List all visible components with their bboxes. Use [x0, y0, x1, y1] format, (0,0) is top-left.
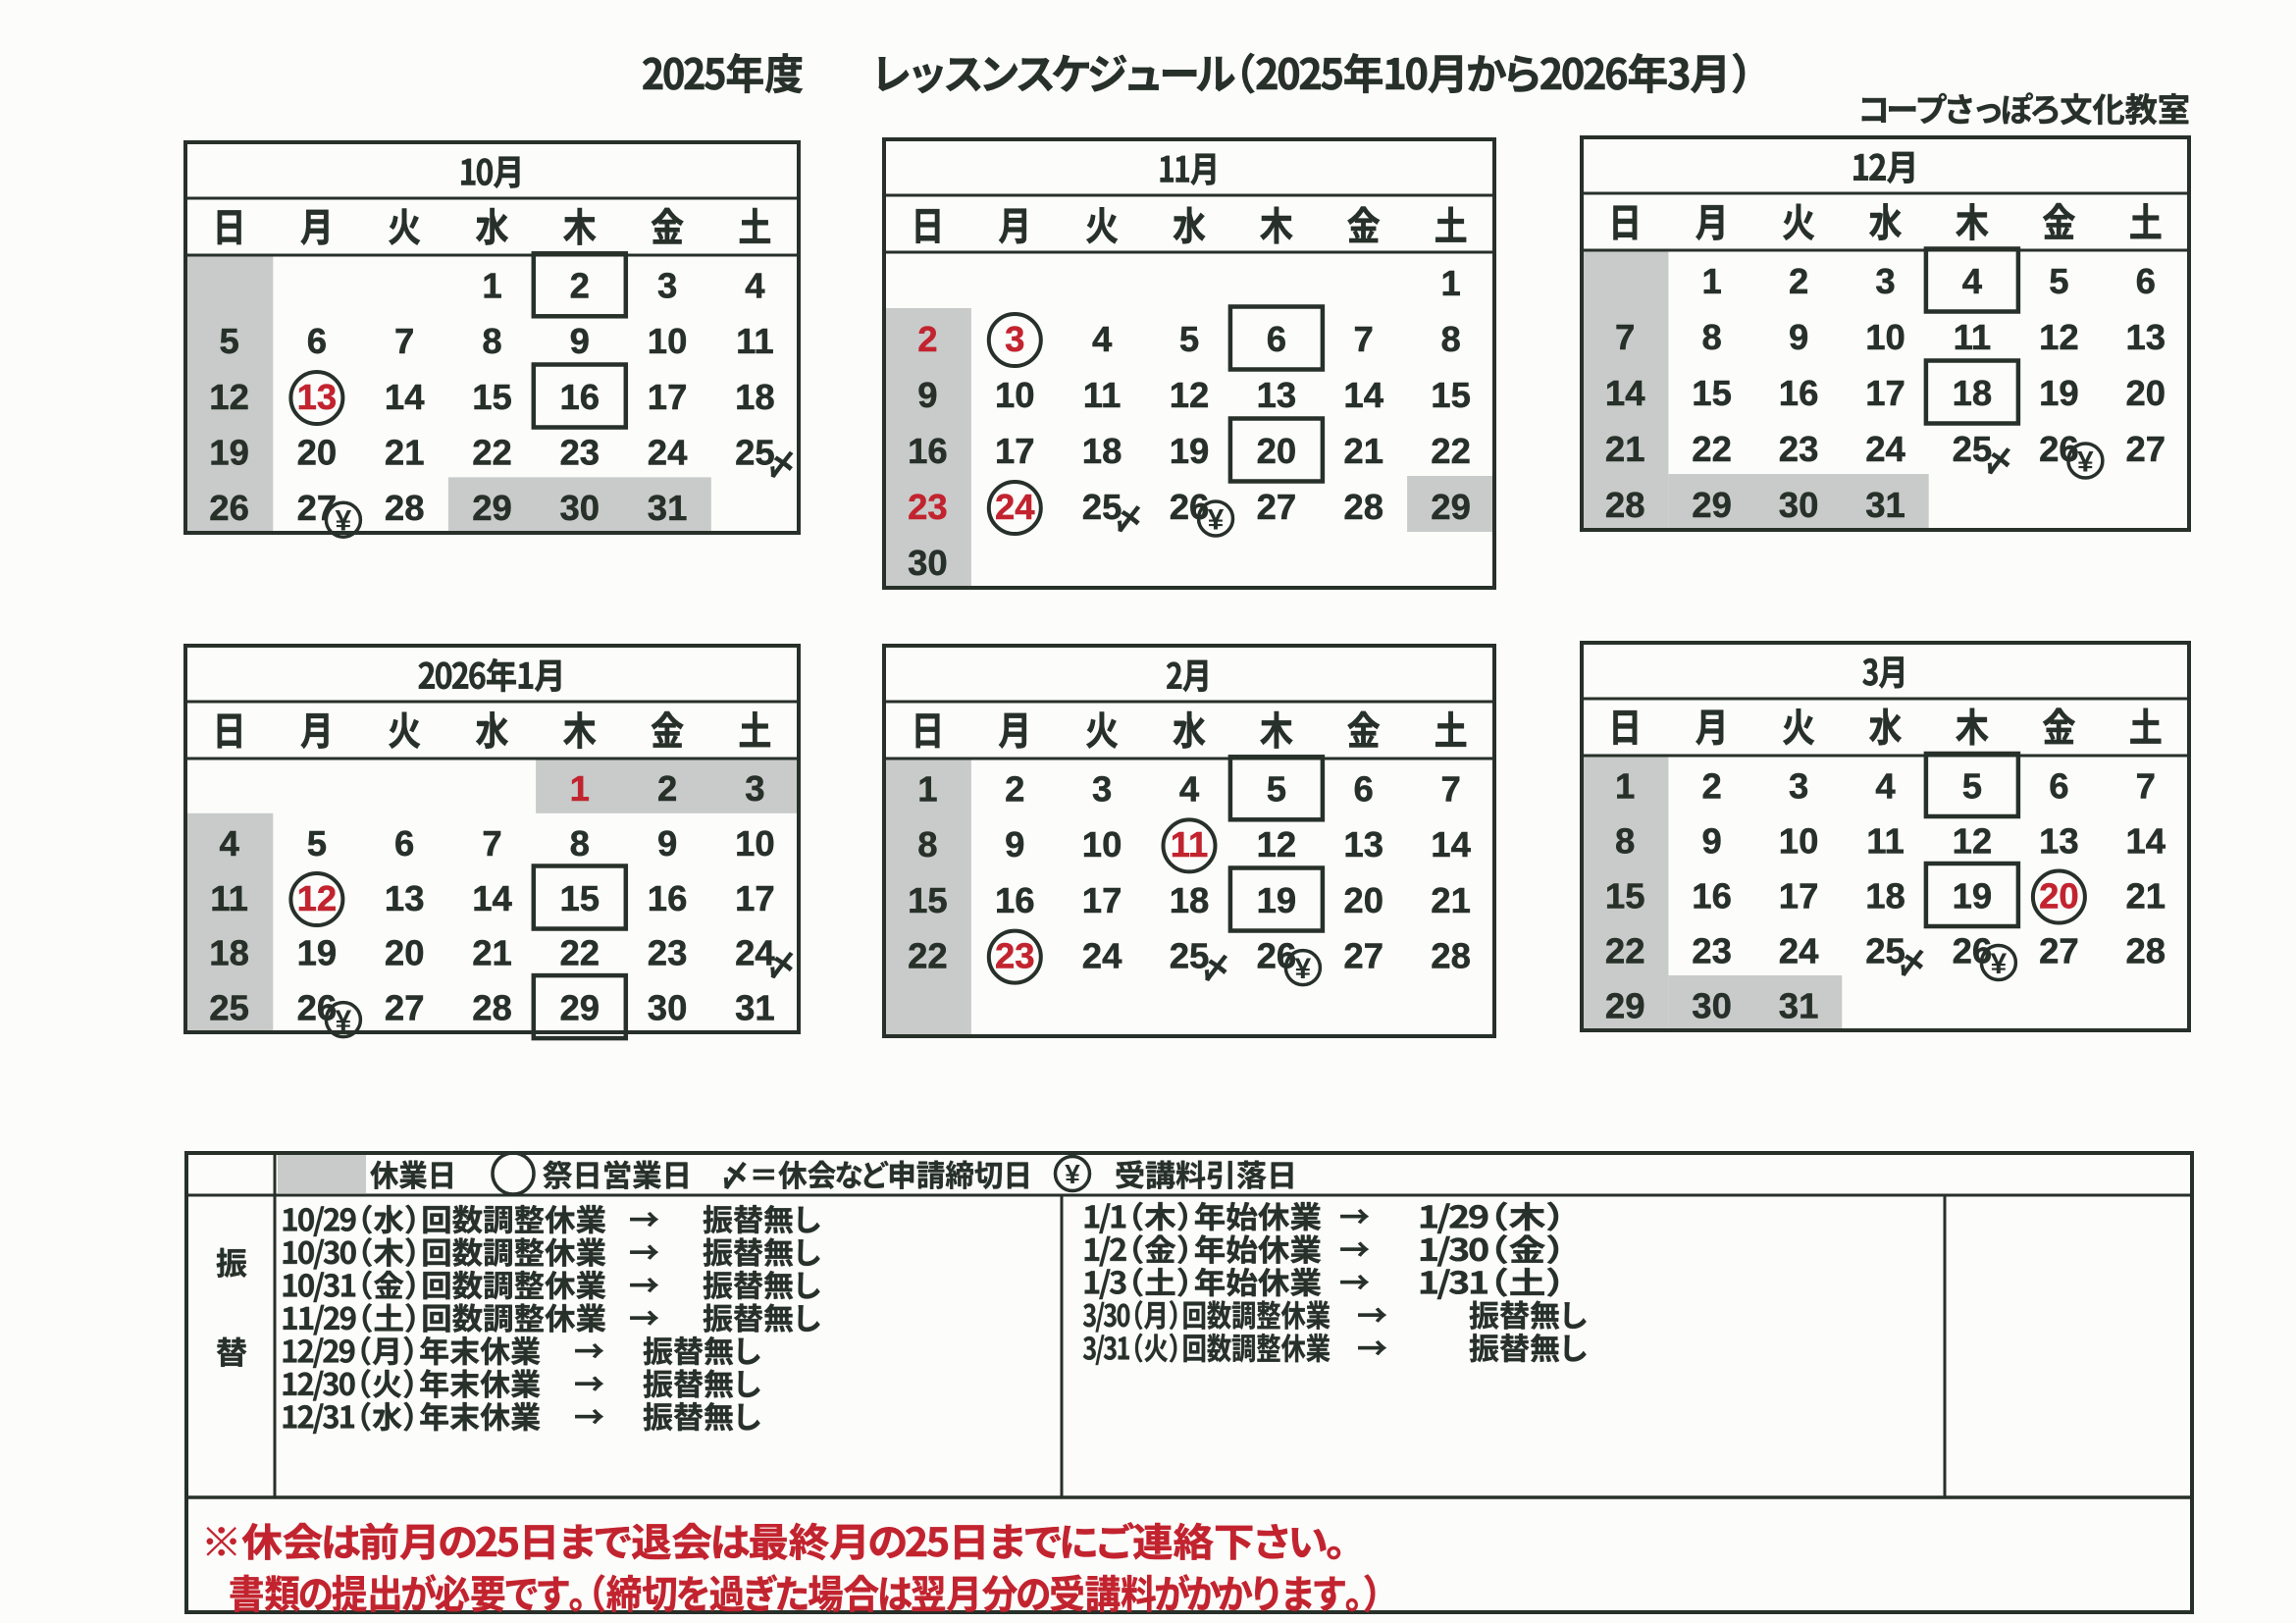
svg-text:25: 25	[1082, 487, 1122, 527]
svg-text:10: 10	[1779, 820, 1819, 861]
svg-text:18: 18	[1082, 431, 1122, 471]
svg-text:25: 25	[1170, 935, 1210, 975]
svg-text:24: 24	[648, 432, 688, 472]
svg-text:16: 16	[559, 377, 600, 417]
svg-text:29: 29	[1692, 485, 1732, 525]
svg-text:31: 31	[648, 488, 688, 528]
svg-text:20: 20	[2125, 373, 2166, 413]
svg-text:12: 12	[1953, 820, 1993, 861]
svg-text:29: 29	[472, 488, 512, 528]
svg-text:14: 14	[1343, 375, 1383, 415]
svg-text:22: 22	[1431, 431, 1471, 471]
svg-text:4: 4	[1179, 769, 1200, 810]
svg-text:4: 4	[1092, 319, 1113, 359]
svg-text:3: 3	[1875, 261, 1895, 301]
svg-text:21: 21	[472, 933, 512, 973]
svg-text:11: 11	[210, 878, 248, 918]
svg-text:25: 25	[735, 432, 775, 472]
svg-text:15: 15	[1431, 375, 1471, 415]
svg-text:15: 15	[472, 377, 512, 417]
svg-text:15: 15	[908, 880, 948, 920]
svg-text:31: 31	[1779, 985, 1819, 1025]
svg-text:8: 8	[482, 321, 501, 361]
svg-text:21: 21	[1605, 429, 1645, 469]
svg-text:18: 18	[1170, 880, 1210, 920]
svg-text:28: 28	[2125, 930, 2166, 970]
svg-text:16: 16	[908, 431, 948, 471]
svg-text:31: 31	[735, 987, 775, 1027]
svg-text:23: 23	[1692, 930, 1732, 970]
svg-text:10: 10	[735, 823, 775, 864]
svg-text:27: 27	[1257, 487, 1297, 527]
svg-text:7: 7	[2136, 765, 2156, 806]
svg-text:23: 23	[995, 935, 1035, 975]
svg-text:5: 5	[1267, 769, 1286, 810]
svg-text:1: 1	[1615, 765, 1635, 806]
svg-text:21: 21	[385, 432, 425, 472]
svg-text:9: 9	[657, 823, 677, 864]
svg-text:18: 18	[1953, 373, 1993, 413]
svg-text:6: 6	[2049, 765, 2068, 806]
svg-text:9: 9	[570, 321, 590, 361]
svg-text:4: 4	[1962, 261, 1983, 301]
svg-text:21: 21	[1343, 431, 1383, 471]
svg-text:8: 8	[1615, 820, 1635, 861]
svg-text:27: 27	[1343, 935, 1383, 975]
svg-text:24: 24	[735, 933, 775, 973]
svg-text:16: 16	[1779, 373, 1819, 413]
svg-text:27: 27	[2125, 429, 2166, 469]
svg-text:9: 9	[1005, 824, 1024, 864]
svg-text:19: 19	[209, 432, 249, 472]
svg-text:28: 28	[1605, 485, 1645, 525]
svg-text:5: 5	[1179, 319, 1199, 359]
svg-text:14: 14	[2125, 820, 2166, 861]
svg-text:18: 18	[1865, 875, 1905, 916]
svg-text:23: 23	[648, 933, 688, 973]
svg-text:2: 2	[1789, 261, 1808, 301]
svg-text:10: 10	[1865, 317, 1905, 357]
svg-text:10: 10	[648, 321, 688, 361]
svg-text:13: 13	[2125, 317, 2166, 357]
svg-text:2: 2	[917, 319, 937, 359]
svg-text:7: 7	[482, 823, 501, 864]
svg-text:2: 2	[1701, 765, 1721, 806]
svg-text:8: 8	[1440, 319, 1460, 359]
svg-text:24: 24	[995, 487, 1035, 527]
svg-text:20: 20	[385, 933, 425, 973]
svg-text:22: 22	[559, 933, 600, 973]
svg-text:22: 22	[908, 935, 948, 975]
svg-text:17: 17	[1779, 875, 1819, 916]
svg-text:2: 2	[570, 266, 590, 306]
svg-text:¥: ¥	[1208, 504, 1225, 537]
svg-text:12: 12	[209, 377, 249, 417]
svg-text:30: 30	[648, 987, 688, 1027]
svg-text:28: 28	[385, 488, 425, 528]
svg-text:1: 1	[482, 266, 501, 306]
svg-text:11: 11	[1083, 375, 1122, 415]
svg-text:3: 3	[745, 768, 764, 809]
svg-text:25: 25	[209, 987, 249, 1027]
svg-text:14: 14	[1431, 824, 1471, 864]
svg-text:15: 15	[559, 878, 600, 918]
svg-text:¥: ¥	[1991, 948, 2008, 980]
svg-text:19: 19	[297, 933, 338, 973]
svg-text:9: 9	[917, 375, 937, 415]
svg-text:18: 18	[209, 933, 249, 973]
svg-text:22: 22	[1605, 930, 1645, 970]
svg-text:8: 8	[1701, 317, 1721, 357]
svg-text:7: 7	[1354, 319, 1374, 359]
svg-text:5: 5	[1962, 765, 1982, 806]
svg-text:16: 16	[648, 878, 688, 918]
svg-text:3: 3	[657, 266, 677, 306]
svg-text:1: 1	[570, 768, 590, 809]
svg-text:5: 5	[2049, 261, 2068, 301]
svg-text:17: 17	[648, 377, 688, 417]
svg-text:11: 11	[736, 321, 774, 361]
svg-text:28: 28	[1431, 935, 1471, 975]
svg-text:28: 28	[472, 987, 512, 1027]
svg-text:17: 17	[1082, 880, 1122, 920]
svg-text:24: 24	[1865, 429, 1905, 469]
svg-text:18: 18	[735, 377, 775, 417]
svg-text:13: 13	[2039, 820, 2079, 861]
svg-text:1: 1	[917, 769, 937, 810]
svg-text:12: 12	[2039, 317, 2079, 357]
svg-text:24: 24	[1082, 935, 1122, 975]
svg-text:3: 3	[1005, 319, 1024, 359]
svg-text:25: 25	[1865, 930, 1905, 970]
svg-text:16: 16	[995, 880, 1035, 920]
svg-text:6: 6	[307, 321, 327, 361]
svg-text:¥: ¥	[336, 1005, 352, 1037]
svg-text:5: 5	[307, 823, 327, 864]
svg-text:6: 6	[2136, 261, 2156, 301]
svg-text:14: 14	[472, 878, 512, 918]
svg-text:11: 11	[1866, 820, 1905, 861]
svg-text:28: 28	[1343, 487, 1383, 527]
svg-text:9: 9	[1701, 820, 1721, 861]
svg-text:16: 16	[1692, 875, 1732, 916]
svg-text:26: 26	[209, 488, 249, 528]
svg-text:30: 30	[908, 543, 948, 583]
svg-text:21: 21	[2125, 875, 2166, 916]
svg-text:19: 19	[1257, 880, 1297, 920]
svg-text:30: 30	[1692, 985, 1732, 1025]
svg-text:4: 4	[1875, 765, 1896, 806]
svg-text:17: 17	[995, 431, 1035, 471]
svg-text:2: 2	[1005, 769, 1024, 810]
svg-text:10: 10	[1082, 824, 1122, 864]
svg-text:27: 27	[385, 987, 425, 1027]
svg-text:3: 3	[1789, 765, 1808, 806]
svg-text:24: 24	[1779, 930, 1819, 970]
svg-text:13: 13	[385, 878, 425, 918]
svg-text:2: 2	[657, 768, 677, 809]
svg-text:1: 1	[1440, 263, 1460, 303]
svg-text:14: 14	[1605, 373, 1645, 413]
svg-text:13: 13	[297, 377, 338, 417]
svg-text:7: 7	[394, 321, 414, 361]
svg-text:10: 10	[995, 375, 1035, 415]
svg-text:6: 6	[1267, 319, 1286, 359]
svg-text:8: 8	[570, 823, 590, 864]
svg-text:13: 13	[1257, 375, 1297, 415]
svg-text:6: 6	[1354, 769, 1374, 810]
svg-text:17: 17	[735, 878, 775, 918]
svg-text:5: 5	[219, 321, 238, 361]
svg-text:20: 20	[2039, 875, 2079, 916]
svg-text:23: 23	[559, 432, 600, 472]
svg-text:20: 20	[297, 432, 338, 472]
svg-text:27: 27	[2039, 930, 2079, 970]
svg-text:19: 19	[2039, 373, 2079, 413]
svg-text:25: 25	[1953, 429, 1993, 469]
svg-text:29: 29	[1431, 487, 1471, 527]
svg-text:22: 22	[472, 432, 512, 472]
svg-text:¥: ¥	[1065, 1159, 1080, 1189]
svg-text:17: 17	[1865, 373, 1905, 413]
svg-text:30: 30	[1779, 485, 1819, 525]
svg-text:19: 19	[1170, 431, 1210, 471]
svg-text:11: 11	[1954, 317, 1992, 357]
svg-text:4: 4	[219, 823, 239, 864]
svg-text:6: 6	[394, 823, 414, 864]
svg-text:12: 12	[1170, 375, 1210, 415]
svg-text:¥: ¥	[336, 505, 352, 538]
svg-text:11: 11	[1171, 824, 1209, 864]
svg-text:30: 30	[559, 488, 600, 528]
svg-text:3: 3	[1092, 769, 1112, 810]
svg-text:23: 23	[1779, 429, 1819, 469]
svg-text:29: 29	[559, 987, 600, 1027]
svg-text:21: 21	[1431, 880, 1471, 920]
svg-text:14: 14	[385, 377, 425, 417]
svg-text:20: 20	[1257, 431, 1297, 471]
svg-text:7: 7	[1615, 317, 1635, 357]
svg-text:4: 4	[745, 266, 765, 306]
svg-text:12: 12	[1257, 824, 1297, 864]
svg-text:13: 13	[1343, 824, 1383, 864]
svg-text:9: 9	[1789, 317, 1808, 357]
svg-text:31: 31	[1865, 485, 1905, 525]
svg-text:19: 19	[1953, 875, 1993, 916]
svg-text:15: 15	[1605, 875, 1645, 916]
svg-text:7: 7	[1440, 769, 1460, 810]
svg-text:8: 8	[917, 824, 937, 864]
svg-text:12: 12	[297, 878, 338, 918]
svg-text:22: 22	[1692, 429, 1732, 469]
svg-text:23: 23	[908, 487, 948, 527]
svg-text:1: 1	[1701, 261, 1721, 301]
svg-text:20: 20	[1343, 880, 1383, 920]
svg-text:¥: ¥	[2077, 446, 2094, 479]
svg-text:15: 15	[1692, 373, 1732, 413]
svg-text:29: 29	[1605, 985, 1645, 1025]
svg-text:¥: ¥	[1295, 953, 1312, 985]
